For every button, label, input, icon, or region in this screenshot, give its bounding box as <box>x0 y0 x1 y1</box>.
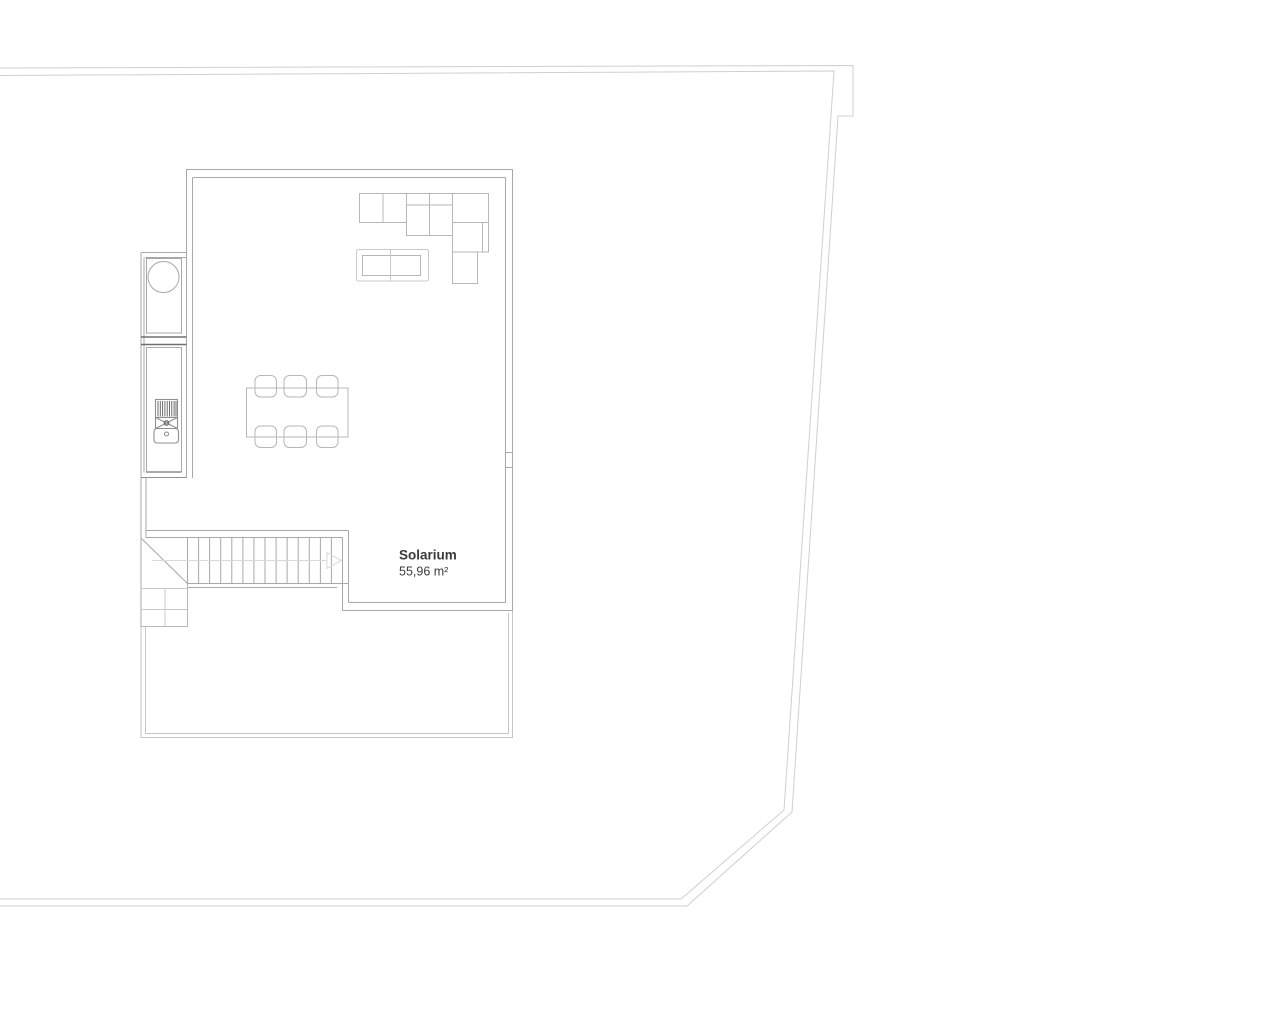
dining-table <box>247 388 349 437</box>
sofa-sectional <box>360 194 489 284</box>
coffee-table <box>357 250 429 282</box>
chair <box>284 376 307 398</box>
chair <box>255 376 277 398</box>
barbecue-grill <box>156 400 178 418</box>
stair-direction-arrow <box>327 553 342 569</box>
solarium-room-walls <box>186 170 513 612</box>
lower-terrace <box>141 611 513 738</box>
sofa-chaise <box>453 252 478 284</box>
room-area: 55,96 m² <box>399 565 448 579</box>
boiler <box>148 262 179 293</box>
boiler-compartment <box>147 259 182 334</box>
kitchen-annex <box>141 253 187 531</box>
dining-set <box>247 376 349 448</box>
floor-plan-drawing: Solarium 55,96 m² <box>0 0 1280 1024</box>
plot-boundary <box>0 66 853 907</box>
kitchen-tap <box>156 418 178 429</box>
sink-basin <box>154 429 179 444</box>
floor-plan-canvas: Solarium 55,96 m² <box>0 0 1280 1024</box>
room-label: Solarium 55,96 m² <box>399 548 457 579</box>
room-name: Solarium <box>399 548 457 563</box>
staircase <box>141 531 349 628</box>
chair <box>317 376 339 398</box>
